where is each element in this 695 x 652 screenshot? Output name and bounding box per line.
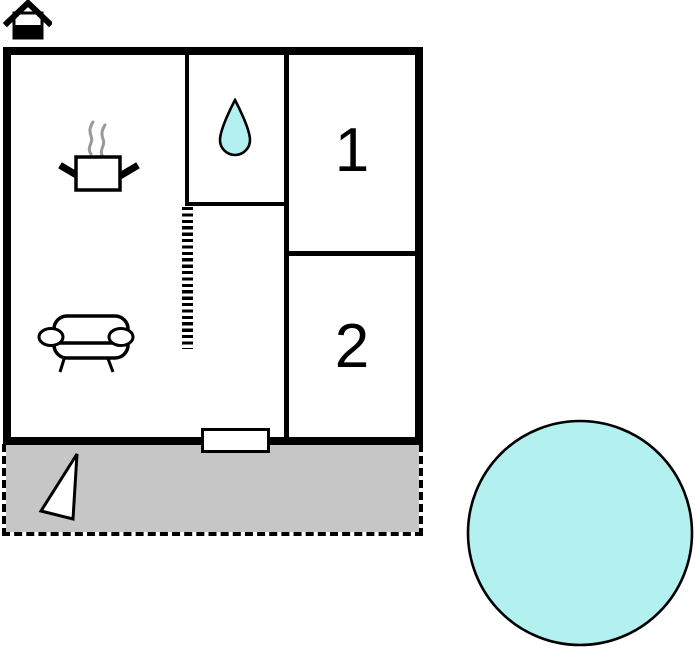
sofa-icon <box>36 310 136 374</box>
sliding-partition-icon <box>182 207 193 349</box>
outer-walls <box>3 47 423 445</box>
wall-bathroom-left <box>185 55 189 206</box>
water-drop-icon <box>218 98 252 157</box>
steam-pot-icon <box>58 112 140 194</box>
bedroom1-label: 1 <box>289 116 415 186</box>
bedroom2-label: 2 <box>289 312 415 382</box>
pool-circle <box>465 418 695 648</box>
floorplan-canvas: 1 2 <box>0 0 695 652</box>
flag-triangle-icon <box>32 448 84 524</box>
wall-bedrooms-divider <box>289 251 415 256</box>
wall-bathroom-bottom <box>185 202 288 206</box>
house-icon <box>2 0 52 44</box>
entrance-door <box>201 428 270 453</box>
